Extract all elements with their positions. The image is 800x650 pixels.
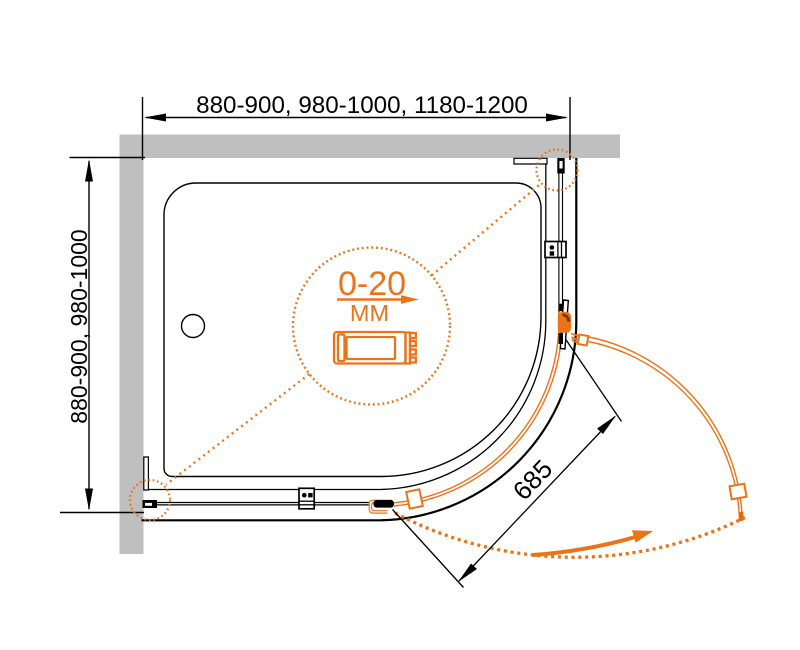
svg-text:ММ: ММ bbox=[350, 300, 389, 326]
svg-text:880-900, 980-1000, 1180-1200: 880-900, 980-1000, 1180-1200 bbox=[196, 92, 528, 119]
svg-text:0-20: 0-20 bbox=[338, 265, 406, 303]
svg-text:880-900, 980-1000: 880-900, 980-1000 bbox=[66, 229, 92, 423]
